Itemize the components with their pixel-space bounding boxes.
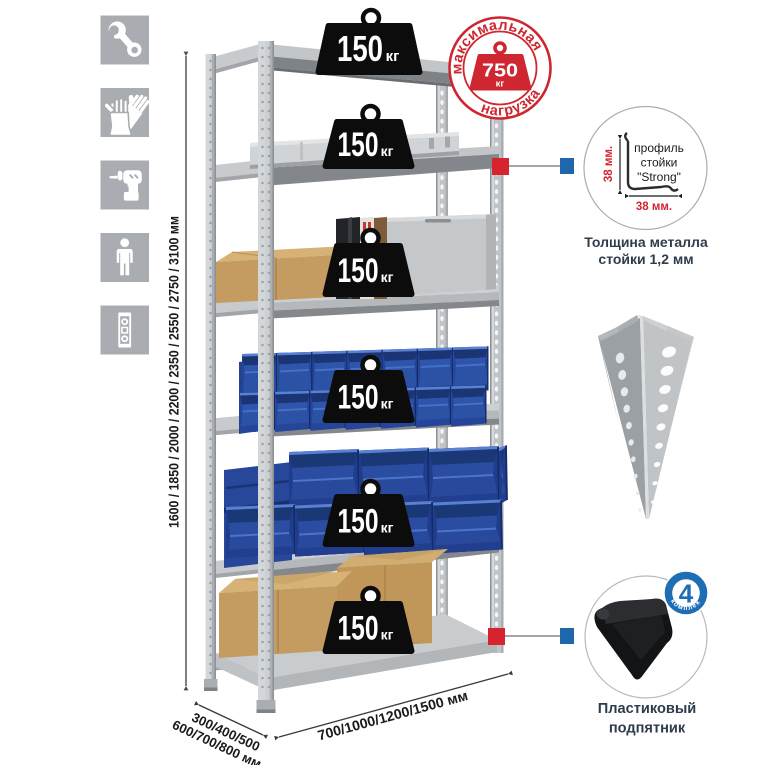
svg-text:Толщина металла: Толщина металла — [584, 234, 708, 250]
svg-text:750: 750 — [482, 61, 518, 81]
svg-text:150: 150 — [337, 28, 383, 69]
svg-text:стойки: стойки — [641, 156, 678, 170]
svg-text:150: 150 — [338, 379, 379, 417]
svg-text:Пластиковый: Пластиковый — [598, 701, 697, 717]
svg-text:150: 150 — [338, 503, 379, 541]
svg-text:38 мм.: 38 мм. — [603, 146, 615, 182]
svg-text:кг: кг — [496, 79, 505, 90]
svg-text:150: 150 — [338, 126, 379, 164]
svg-text:подпятник: подпятник — [609, 721, 686, 737]
svg-text:кг: кг — [381, 143, 394, 159]
svg-text:стойки 1,2 мм: стойки 1,2 мм — [598, 251, 693, 267]
svg-text:150: 150 — [338, 252, 379, 290]
svg-text:кг: кг — [386, 48, 400, 65]
svg-text:кг: кг — [381, 396, 394, 412]
svg-text:38 мм.: 38 мм. — [636, 201, 672, 213]
svg-text:150: 150 — [338, 610, 379, 648]
svg-text:"Strong": "Strong" — [637, 170, 681, 184]
svg-text:кг: кг — [381, 520, 394, 536]
svg-text:1600 / 1850 / 2000 / 2200 / 23: 1600 / 1850 / 2000 / 2200 / 2350 / 2550 … — [167, 216, 182, 528]
svg-text:кг: кг — [381, 627, 394, 643]
svg-text:профиль: профиль — [634, 141, 684, 155]
svg-text:кг: кг — [381, 269, 394, 285]
